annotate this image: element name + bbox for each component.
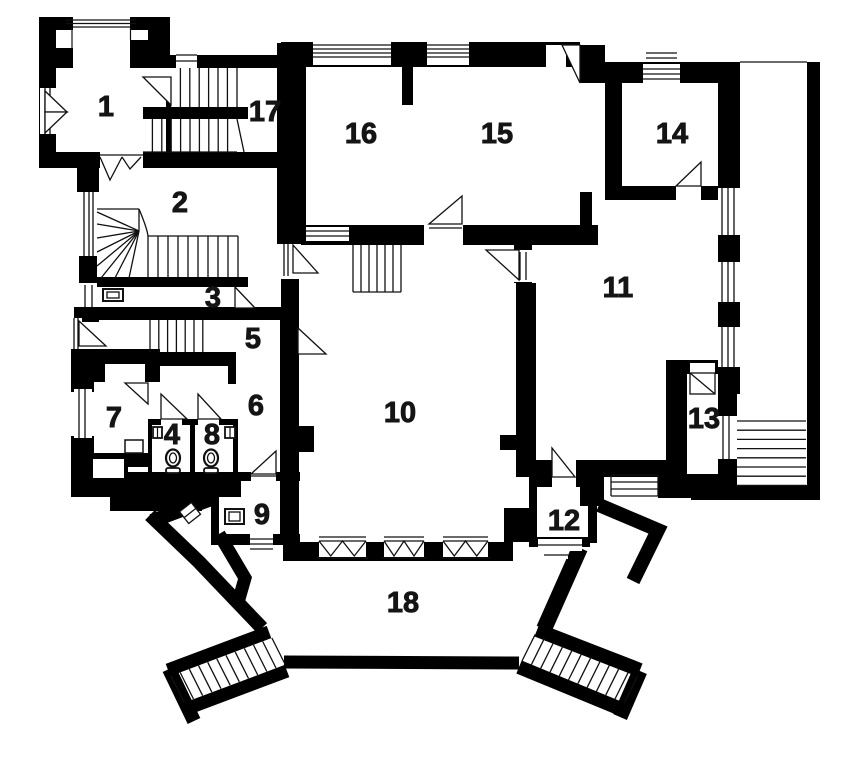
svg-text:17: 17 — [249, 96, 281, 128]
svg-text:16: 16 — [345, 118, 377, 150]
svg-text:15: 15 — [481, 118, 513, 150]
svg-text:1: 1 — [98, 91, 114, 123]
svg-text:7: 7 — [106, 402, 122, 434]
svg-text:12: 12 — [548, 505, 580, 537]
svg-text:9: 9 — [254, 499, 270, 531]
svg-text:3: 3 — [205, 282, 221, 314]
svg-text:18: 18 — [387, 587, 419, 619]
svg-text:2: 2 — [172, 187, 188, 219]
svg-text:8: 8 — [204, 419, 220, 451]
svg-text:10: 10 — [384, 397, 416, 429]
svg-text:13: 13 — [688, 403, 720, 435]
svg-text:4: 4 — [164, 419, 180, 451]
svg-text:5: 5 — [245, 323, 261, 355]
svg-text:14: 14 — [656, 118, 688, 150]
svg-text:6: 6 — [248, 390, 264, 422]
svg-text:11: 11 — [603, 272, 634, 304]
